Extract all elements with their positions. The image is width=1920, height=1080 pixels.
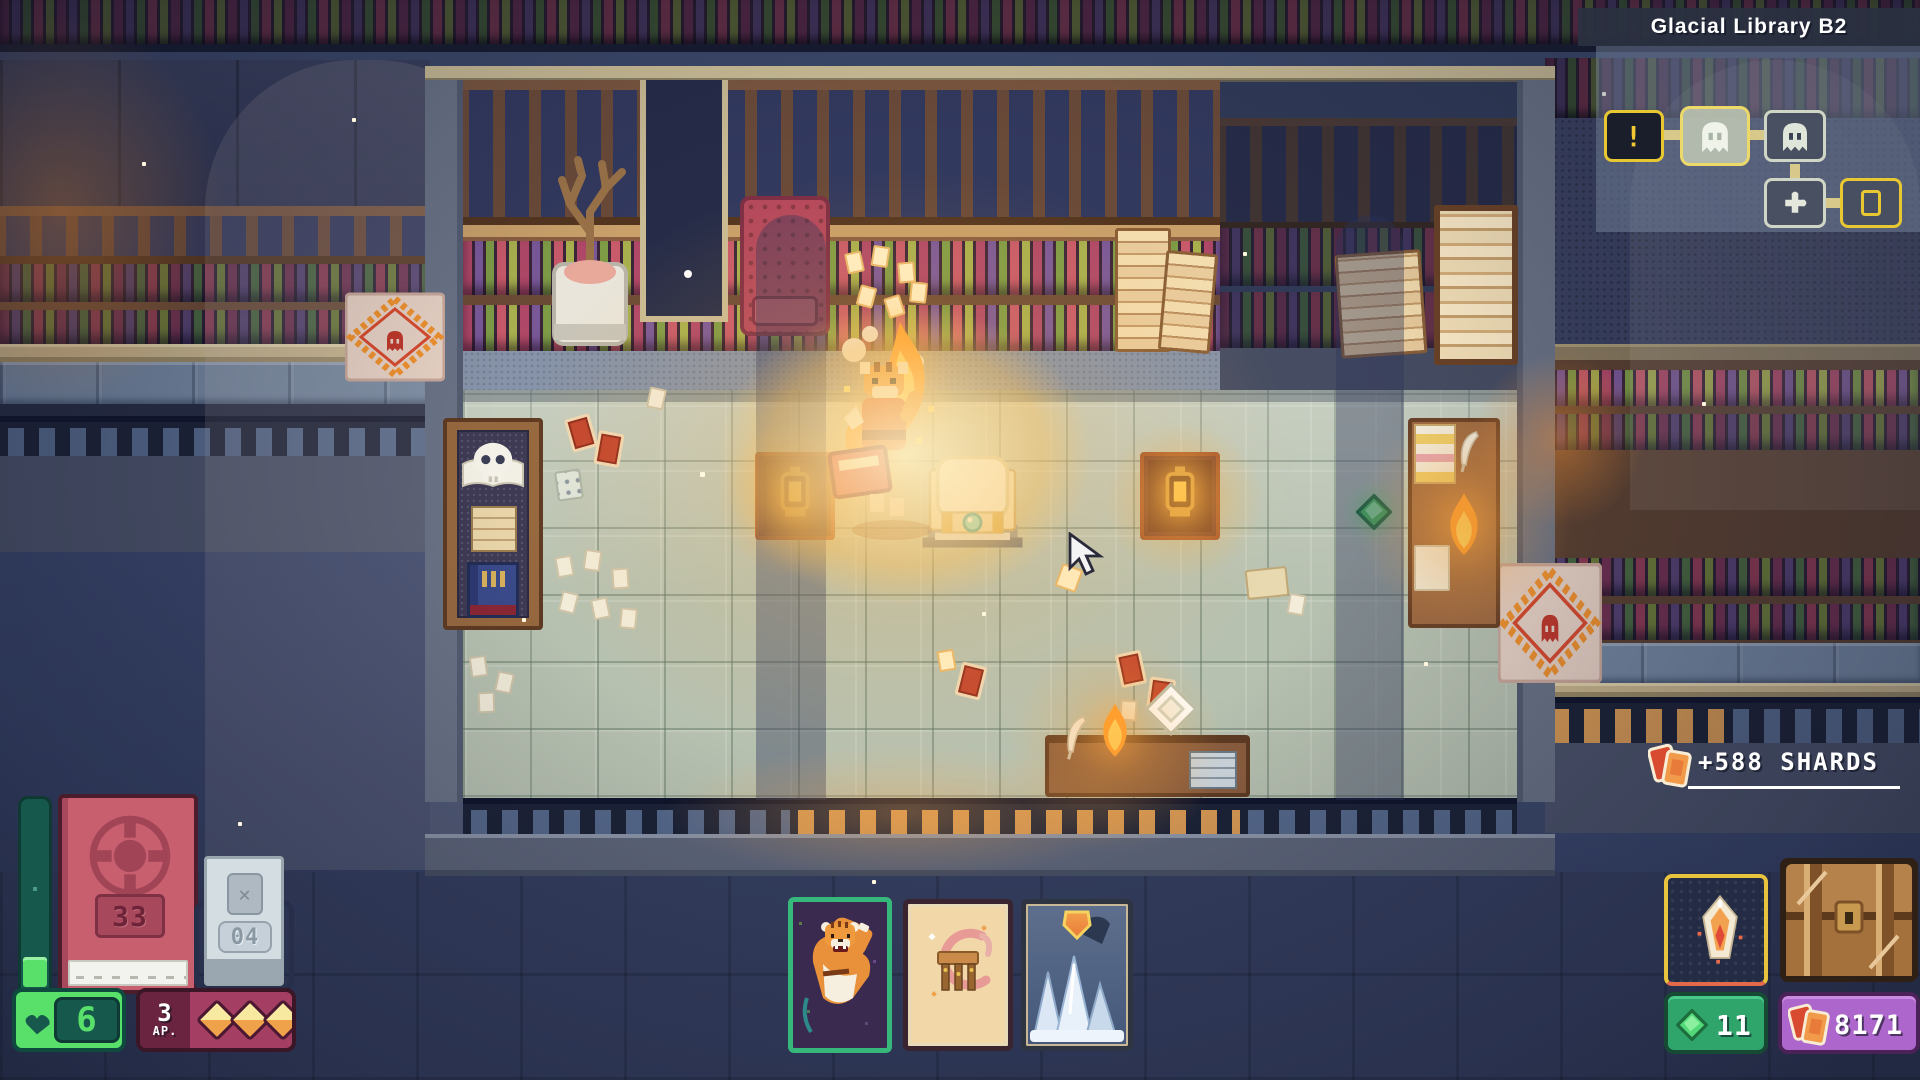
health-bar xyxy=(18,796,52,992)
paper-pile xyxy=(471,506,517,552)
shard-count: 8171 xyxy=(1834,1010,1903,1041)
table-card-art xyxy=(908,904,1008,1046)
paper xyxy=(583,549,603,572)
minimap-panel: ! xyxy=(1596,46,1920,232)
health-badge: 6 xyxy=(12,988,126,1052)
skull-icon xyxy=(469,440,517,484)
sparkle xyxy=(1424,662,1428,666)
paper xyxy=(611,567,629,589)
exclamation-icon: ! xyxy=(1625,120,1643,153)
paper xyxy=(554,555,574,579)
deck-pages xyxy=(68,960,188,986)
floor-lantern xyxy=(1160,466,1200,522)
room-railing xyxy=(463,798,790,834)
sparkle xyxy=(522,618,526,622)
minimap-connector xyxy=(1750,130,1764,140)
ap-value: 3 xyxy=(157,1002,172,1024)
blue-tome xyxy=(467,562,519,618)
balustrade xyxy=(1725,697,1920,743)
heart-icon xyxy=(24,1012,50,1036)
minimap-room-ghost[interactable] xyxy=(1764,110,1826,162)
sparkle xyxy=(1702,402,1706,406)
ap-pip xyxy=(262,999,296,1041)
sparkle xyxy=(982,612,986,616)
candle-flame xyxy=(1096,688,1134,772)
ap-label: AP. xyxy=(153,1024,178,1038)
discard-icon-plaque: ✕ xyxy=(227,873,263,915)
discard-bottom-band xyxy=(207,959,281,983)
dead-tree-plant xyxy=(538,152,642,348)
popup-underline xyxy=(1688,786,1900,789)
shards-icon xyxy=(1648,740,1694,792)
sparkle xyxy=(700,472,705,477)
minimap-room-edge[interactable] xyxy=(1840,178,1902,228)
gem-icon xyxy=(1676,1009,1708,1041)
puzzle-icon xyxy=(1782,190,1808,216)
shard-popup-text: +588 SHARDS xyxy=(1698,748,1879,776)
relic-slot[interactable] xyxy=(1664,874,1768,986)
shard-gain-popup: +588 SHARDS xyxy=(1648,740,1904,796)
paper xyxy=(897,261,916,283)
shards-icon xyxy=(1788,1000,1832,1050)
book-stack xyxy=(1158,250,1219,354)
tome-gilding xyxy=(482,571,508,587)
player-character-burning[interactable] xyxy=(828,318,952,550)
minimap-title-bar: Glacial Library B2 xyxy=(1578,8,1920,46)
paper xyxy=(478,692,496,714)
paper xyxy=(870,245,890,268)
health-value-panel: 6 xyxy=(54,997,120,1043)
crystal-relic-icon xyxy=(1692,892,1748,968)
domino-card xyxy=(554,468,584,501)
game-viewport: ! Glacial Library B2 +588 SHARDS xyxy=(0,0,1920,1080)
ghost-icon xyxy=(1781,120,1809,152)
quill-icon xyxy=(1058,712,1092,764)
balustrade xyxy=(1545,697,1725,743)
envelope xyxy=(1245,566,1290,600)
shard-counter: 8171 xyxy=(1778,992,1920,1054)
ice-card-art xyxy=(1026,904,1128,1046)
towel-stack xyxy=(1414,424,1456,484)
paper xyxy=(1286,593,1306,617)
room-railing xyxy=(790,798,1240,834)
health-bar-fill xyxy=(23,957,47,987)
hand-card-table[interactable] xyxy=(903,899,1013,1051)
ghost-rug xyxy=(345,292,445,382)
health-value: 6 xyxy=(76,1000,97,1040)
sparkle xyxy=(238,822,242,826)
sparkle xyxy=(872,880,876,884)
discard-pile[interactable]: ✕ 04 xyxy=(204,856,284,986)
paper xyxy=(469,655,489,678)
discard-count-plaque: 04 xyxy=(218,921,272,953)
room-railing xyxy=(1240,798,1517,834)
ap-badge: 3 AP. xyxy=(136,988,296,1052)
ghost-rug xyxy=(1498,563,1602,683)
health-bar-speck xyxy=(33,887,37,891)
deck-book[interactable]: 33 xyxy=(58,794,198,994)
mouse-cursor xyxy=(1066,532,1108,578)
sparkle xyxy=(1243,252,1247,256)
desk-books xyxy=(1189,751,1237,789)
minimap-connector xyxy=(1664,130,1680,140)
paper xyxy=(909,281,928,304)
arch-shadow-column xyxy=(756,215,826,800)
paper-shelf xyxy=(1434,205,1518,365)
minimap-room-current[interactable] xyxy=(1680,106,1750,166)
discard-count: 04 xyxy=(231,925,260,950)
hand-card-ice[interactable] xyxy=(1021,899,1133,1051)
minimap-connector xyxy=(1790,164,1800,178)
room-bottom-ledge xyxy=(425,834,1555,876)
skull-table xyxy=(443,418,543,630)
discard-x-icon: ✕ xyxy=(238,882,251,906)
deck-count: 33 xyxy=(112,900,148,933)
minimap-room-puzzle[interactable] xyxy=(1764,178,1826,228)
sparkle xyxy=(142,162,146,166)
paper xyxy=(1414,545,1450,591)
wall-alcove xyxy=(640,80,728,322)
arch-shadow-column xyxy=(1336,215,1404,800)
minimap-connector xyxy=(1826,198,1840,208)
gem-count: 11 xyxy=(1716,1009,1752,1042)
room-wall-right xyxy=(1517,80,1555,802)
treasure-chest[interactable] xyxy=(1778,852,1920,986)
paper xyxy=(619,607,638,630)
paper xyxy=(936,649,956,673)
ap-value-section: 3 AP. xyxy=(140,992,190,1048)
deck-emblem xyxy=(84,810,176,902)
minimap-room-event[interactable]: ! xyxy=(1604,110,1664,162)
deck-count-plaque: 33 xyxy=(95,894,165,938)
tiger-card-art xyxy=(793,902,887,1048)
moon-dot xyxy=(684,270,692,278)
ledge xyxy=(1545,683,1920,697)
hand-card-tiger[interactable] xyxy=(788,897,892,1053)
minimap-title: Glacial Library B2 xyxy=(1651,15,1848,39)
ghost-icon xyxy=(1700,119,1730,153)
quill-icon xyxy=(1452,428,1484,476)
sparkle xyxy=(352,118,356,122)
unknown-room-glyph xyxy=(1861,190,1881,216)
gem-counter: 11 xyxy=(1664,992,1768,1054)
